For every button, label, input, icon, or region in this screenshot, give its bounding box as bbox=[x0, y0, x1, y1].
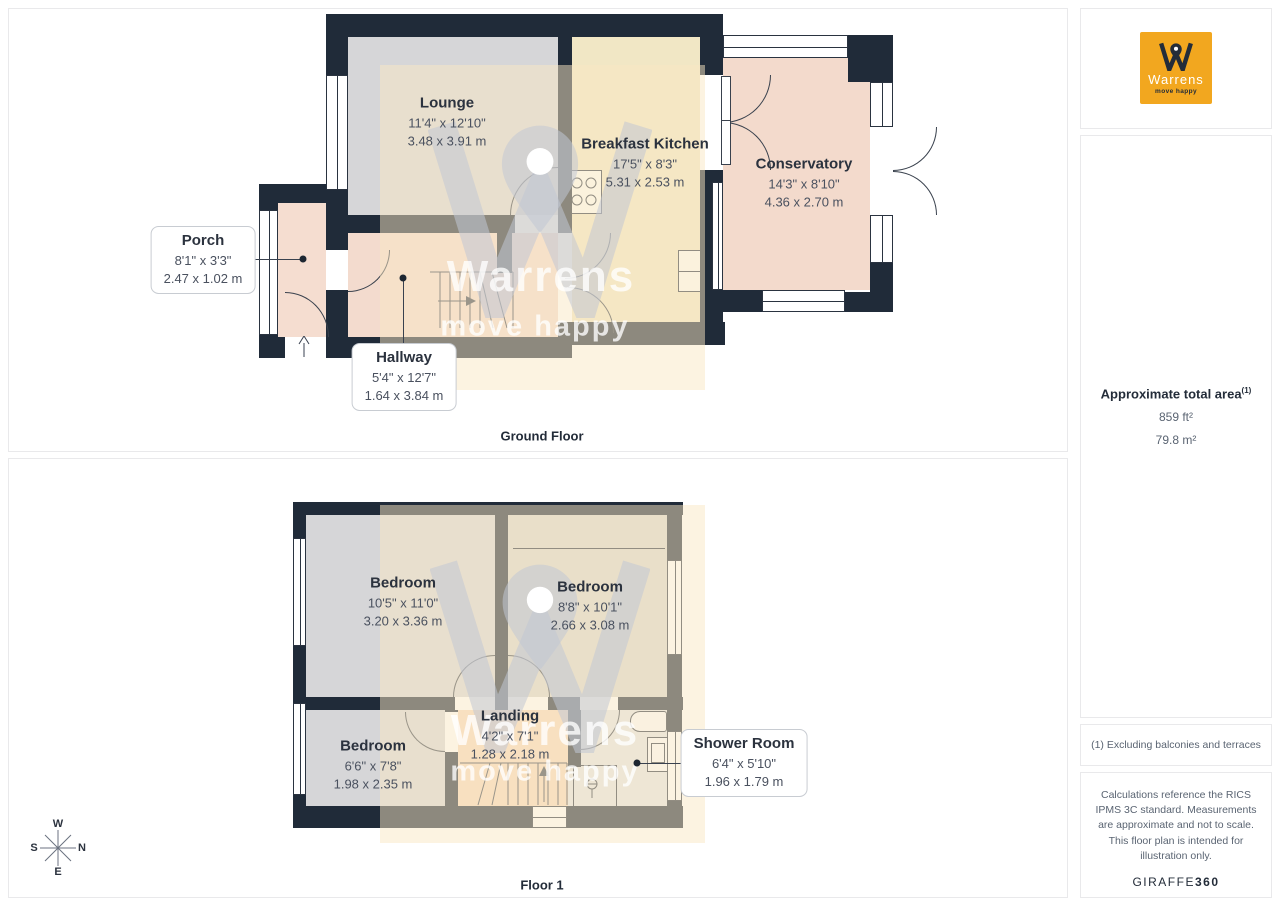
room-callout-porch: Porch 8'1" x 3'3" 2.47 x 1.02 m bbox=[151, 226, 256, 294]
agency-logo-w-icon bbox=[1159, 42, 1193, 71]
floor1-caption: Floor 1 bbox=[520, 878, 563, 893]
callout-dot bbox=[400, 275, 407, 282]
door-opening bbox=[870, 127, 893, 215]
disclaimer-block: Calculations reference the RICS IPMS 3C … bbox=[1080, 772, 1272, 898]
room-dim-metric: 2.66 x 3.08 m bbox=[551, 616, 630, 634]
room-dim-imperial: 14'3" x 8'10" bbox=[756, 175, 853, 193]
callout-dot bbox=[300, 256, 307, 263]
room-dim-imperial: 17'5" x 8'3" bbox=[581, 155, 709, 173]
disclaimer-text: Calculations reference the RICS IPMS 3C … bbox=[1093, 788, 1259, 864]
room-dim-imperial: 11'4" x 12'10" bbox=[408, 114, 487, 132]
room-dim-metric: 5.31 x 2.53 m bbox=[581, 173, 709, 191]
total-area-superscript: (1) bbox=[1242, 386, 1252, 395]
room-label-bedroom2: Bedroom 8'8" x 10'1" 2.66 x 3.08 m bbox=[551, 578, 630, 633]
credit-name: GIRAFFE bbox=[1132, 875, 1195, 889]
wall bbox=[703, 290, 762, 312]
room-name: Porch bbox=[164, 232, 243, 249]
room-dim-metric: 1.28 x 2.18 m bbox=[471, 745, 550, 763]
compass-east-label: E bbox=[54, 866, 61, 878]
watermark-brand-text: Warrens bbox=[447, 252, 635, 302]
room-name: Bedroom bbox=[364, 574, 443, 591]
window bbox=[259, 210, 278, 335]
room-name: Hallway bbox=[365, 349, 444, 366]
door-opening bbox=[326, 250, 348, 290]
room-dim-metric: 3.48 x 3.91 m bbox=[408, 132, 487, 150]
room-name: Lounge bbox=[408, 94, 487, 111]
room-dim-imperial: 8'8" x 10'1" bbox=[551, 598, 630, 616]
room-dim-imperial: 5'4" x 12'7" bbox=[365, 369, 444, 387]
room-dim-metric: 4.36 x 2.70 m bbox=[756, 193, 853, 211]
room-dim-imperial: 6'4" x 5'10" bbox=[694, 755, 795, 773]
room-name: Bedroom bbox=[334, 737, 413, 754]
room-label-landing: Landing 4'2" x 7'1" 1.28 x 2.18 m bbox=[471, 707, 550, 762]
room-dim-imperial: 10'5" x 11'0" bbox=[364, 594, 443, 612]
room-callout-hallway: Hallway 5'4" x 12'7" 1.64 x 3.84 m bbox=[352, 343, 457, 411]
total-area-imperial: 859 ft² bbox=[1080, 410, 1272, 424]
agency-logo: Warrens move happy bbox=[1140, 32, 1212, 104]
room-label-conservatory: Conservatory 14'3" x 8'10" 4.36 x 2.70 m bbox=[756, 155, 853, 210]
compass-north-label: N bbox=[78, 842, 86, 854]
total-area-metric: 79.8 m² bbox=[1080, 433, 1272, 447]
room-name: Conservatory bbox=[756, 155, 853, 172]
room-name: Shower Room bbox=[694, 735, 795, 752]
room-label-bedroom1: Bedroom 10'5" x 11'0" 3.20 x 3.36 m bbox=[364, 574, 443, 629]
window bbox=[723, 35, 848, 58]
room-name: Breakfast Kitchen bbox=[581, 135, 709, 152]
callout-dot bbox=[634, 760, 641, 767]
room-dim-metric: 1.98 x 2.35 m bbox=[334, 775, 413, 793]
floorplan-page: Warrens move happy Lounge 11'4" x 12'10"… bbox=[0, 0, 1280, 906]
credit-suffix: 360 bbox=[1195, 875, 1220, 889]
window bbox=[870, 82, 893, 127]
room-dim-imperial: 6'6" x 7'8" bbox=[334, 757, 413, 775]
room-dim-imperial: 8'1" x 3'3" bbox=[164, 252, 243, 270]
wall bbox=[845, 292, 892, 312]
window bbox=[870, 215, 893, 263]
window bbox=[762, 290, 845, 312]
room-dim-metric: 1.96 x 1.79 m bbox=[694, 773, 795, 791]
room-label-breakfast-kitchen: Breakfast Kitchen 17'5" x 8'3" 5.31 x 2.… bbox=[581, 135, 709, 190]
giraffe360-credit: GIRAFFE360 bbox=[1093, 874, 1259, 891]
compass-south-label: S bbox=[30, 842, 37, 854]
window bbox=[712, 182, 723, 290]
total-area-block: Approximate total area(1) 859 ft² 79.8 m… bbox=[1080, 386, 1272, 447]
room-dim-metric: 1.64 x 3.84 m bbox=[365, 387, 444, 405]
room-dim-metric: 3.20 x 3.36 m bbox=[364, 612, 443, 630]
total-area-title: Approximate total area(1) bbox=[1080, 386, 1272, 401]
room-callout-shower-room: Shower Room 6'4" x 5'10" 1.96 x 1.79 m bbox=[681, 729, 808, 797]
window bbox=[293, 703, 306, 795]
footnote: (1) Excluding balconies and terraces bbox=[1080, 724, 1272, 766]
entry-arrow-icon bbox=[294, 336, 314, 358]
total-area-title-text: Approximate total area bbox=[1101, 386, 1242, 401]
callout-leader bbox=[403, 278, 404, 348]
room-name: Landing bbox=[471, 707, 550, 724]
room-name: Bedroom bbox=[551, 578, 630, 595]
compass-west-label: W bbox=[53, 818, 63, 830]
wall bbox=[848, 35, 893, 82]
french-door-leaf bbox=[721, 120, 731, 165]
wall bbox=[326, 14, 723, 37]
room-dim-metric: 2.47 x 1.02 m bbox=[164, 270, 243, 288]
room-label-bedroom3: Bedroom 6'6" x 7'8" 1.98 x 2.35 m bbox=[334, 737, 413, 792]
callout-leader bbox=[249, 259, 305, 260]
french-door-leaf bbox=[721, 76, 731, 121]
agency-logo-tagline: move happy bbox=[1155, 88, 1197, 95]
window bbox=[293, 538, 306, 646]
watermark-tagline-text: move happy bbox=[440, 311, 629, 344]
ground-floor-caption: Ground Floor bbox=[500, 429, 583, 444]
agency-logo-name: Warrens bbox=[1148, 72, 1204, 87]
room-dim-imperial: 4'2" x 7'1" bbox=[471, 727, 550, 745]
room-label-lounge: Lounge 11'4" x 12'10" 3.48 x 3.91 m bbox=[408, 94, 487, 149]
window bbox=[326, 75, 348, 190]
compass-icon bbox=[40, 830, 76, 866]
